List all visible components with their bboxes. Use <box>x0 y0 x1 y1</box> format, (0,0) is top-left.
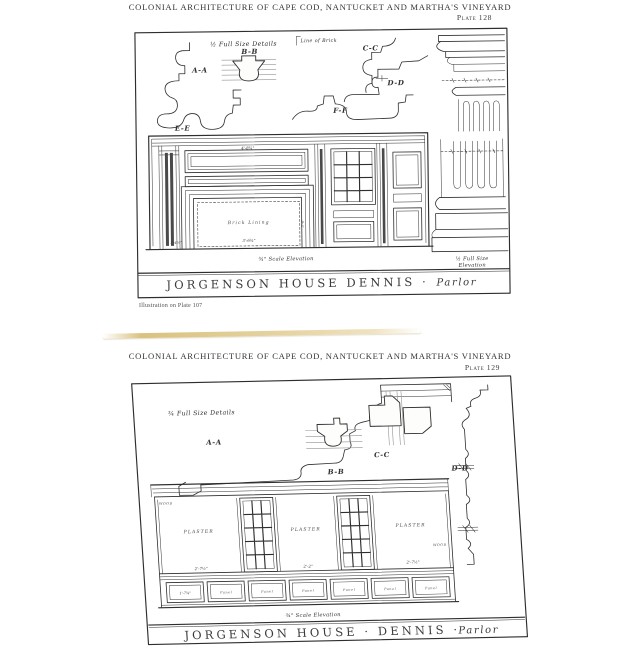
section-label-dd: D-D <box>386 78 404 87</box>
section-label-bb: B-B <box>240 47 258 56</box>
plate-129-drawing: ¾ Full Size Details A-A B-B C-C D-D <box>130 374 529 646</box>
molding-profile-ff: F-F <box>292 95 413 120</box>
title-band: JORGENSON HOUSE · DENNIS · Parlor <box>149 617 526 643</box>
plate-128-drawing: ½ Full Size Details A-A E-E B-B Line of … <box>133 27 511 300</box>
molding-profile-cc: C-C <box>368 390 433 459</box>
book-scan: { "colors": { "ink": "#2e2e2e", "paper":… <box>0 0 640 640</box>
dim-bay-mid: 2'-2" <box>302 564 313 569</box>
running-head: COLONIAL ARCHITECTURE OF CAPE COD, NANTU… <box>0 351 640 361</box>
molding-profile-aa: A-A <box>173 384 458 496</box>
full-size-caption-2: Elevation <box>458 263 487 269</box>
section-label-aa: A-A <box>191 65 208 74</box>
dim-top-width: 4'-8¾" <box>240 145 254 150</box>
wood-label-right: WOOD <box>433 543 447 547</box>
section-label-cc: C-C <box>363 43 379 52</box>
scale-caption: ¾" Scale Elevation <box>259 255 314 263</box>
running-head: COLONIAL ARCHITECTURE OF CAPE COD, NANTU… <box>0 2 640 12</box>
molding-profile-dd: D-D <box>344 56 429 102</box>
line-of-brick-note: Line of Brick <box>296 36 337 45</box>
panel-label: Panel <box>301 589 314 593</box>
molding-profile-dd: D-D <box>445 385 499 565</box>
scale-caption: ¾" Scale Elevation <box>286 611 342 619</box>
panel-label: Panel <box>383 587 396 591</box>
pilaster-base-detail: ½ Full Size Elevation <box>431 139 509 269</box>
title-band: JORGENSON HOUSE DENNIS · Parlor <box>138 269 509 293</box>
section-label-aa: A-A <box>205 438 222 447</box>
plate-number: Plate 128 <box>457 13 492 22</box>
page-plate-129: COLONIAL ARCHITECTURE OF CAPE COD, NANTU… <box>0 340 640 640</box>
paneled-wall-elevation: PLASTER PLASTER PLASTER WOOD WOOD 2'-7½"… <box>151 479 460 622</box>
details-caption: ¾ Full Size Details <box>168 409 235 417</box>
panel-label: Panel <box>424 586 437 590</box>
dim-panel-first: 1'-7¾" <box>179 590 191 595</box>
dim-bay-left: 2'-7½" <box>193 566 208 571</box>
panel-label: Panel <box>260 589 273 593</box>
plate-room: Parlor <box>435 277 477 289</box>
plaster-label-mid: PLASTER <box>290 526 322 533</box>
footnote: Illustration on Plate 107 <box>139 303 202 309</box>
plaster-label-left: PLASTER <box>183 529 215 536</box>
section-label-cc: C-C <box>374 450 390 459</box>
wainscot-row: 1'-7¾" Panel Panel Panel Panel Panel Pan… <box>166 577 450 603</box>
page-plate-128: COLONIAL ARCHITECTURE OF CAPE COD, NANTU… <box>0 0 640 340</box>
section-label-ff: F-F <box>332 106 348 115</box>
wood-label-left: WOOD <box>159 502 173 506</box>
panel-label: Panel <box>219 590 232 594</box>
brick-lining-label: Brick Lining <box>227 220 270 227</box>
plate-room: Parlor <box>457 625 499 637</box>
pilaster-capital-detail <box>437 35 506 132</box>
plate-title: JORGENSON HOUSE DENNIS · <box>165 275 428 292</box>
dim-opening-height: 3'-0" <box>301 219 305 228</box>
dim-bay-right: 2'-7½" <box>405 559 420 564</box>
plate-number: Plate 129 <box>465 363 500 372</box>
plaster-label-right: PLASTER <box>394 522 426 529</box>
section-label-dd: D-D <box>450 463 469 472</box>
section-label-bb: B-B <box>326 467 344 476</box>
section-label-ee: E-E <box>174 124 191 133</box>
panel-label: Panel <box>342 588 355 592</box>
molding-profile-aa-ee: A-A E-E <box>156 42 241 133</box>
dim-opening-width: 3'-6¾" <box>242 238 255 243</box>
fireplace-wall-elevation: Brick Lining 3'-6¾" 3'-0" 1'-4½" 4'-8¾" … <box>145 133 434 264</box>
full-size-caption-1: ½ Full Size <box>456 255 489 262</box>
line-of-brick-label: Line of Brick <box>299 38 337 44</box>
dim-hearth: 1'-4½" <box>170 240 182 245</box>
molding-profile-bb: B-B <box>222 47 276 82</box>
